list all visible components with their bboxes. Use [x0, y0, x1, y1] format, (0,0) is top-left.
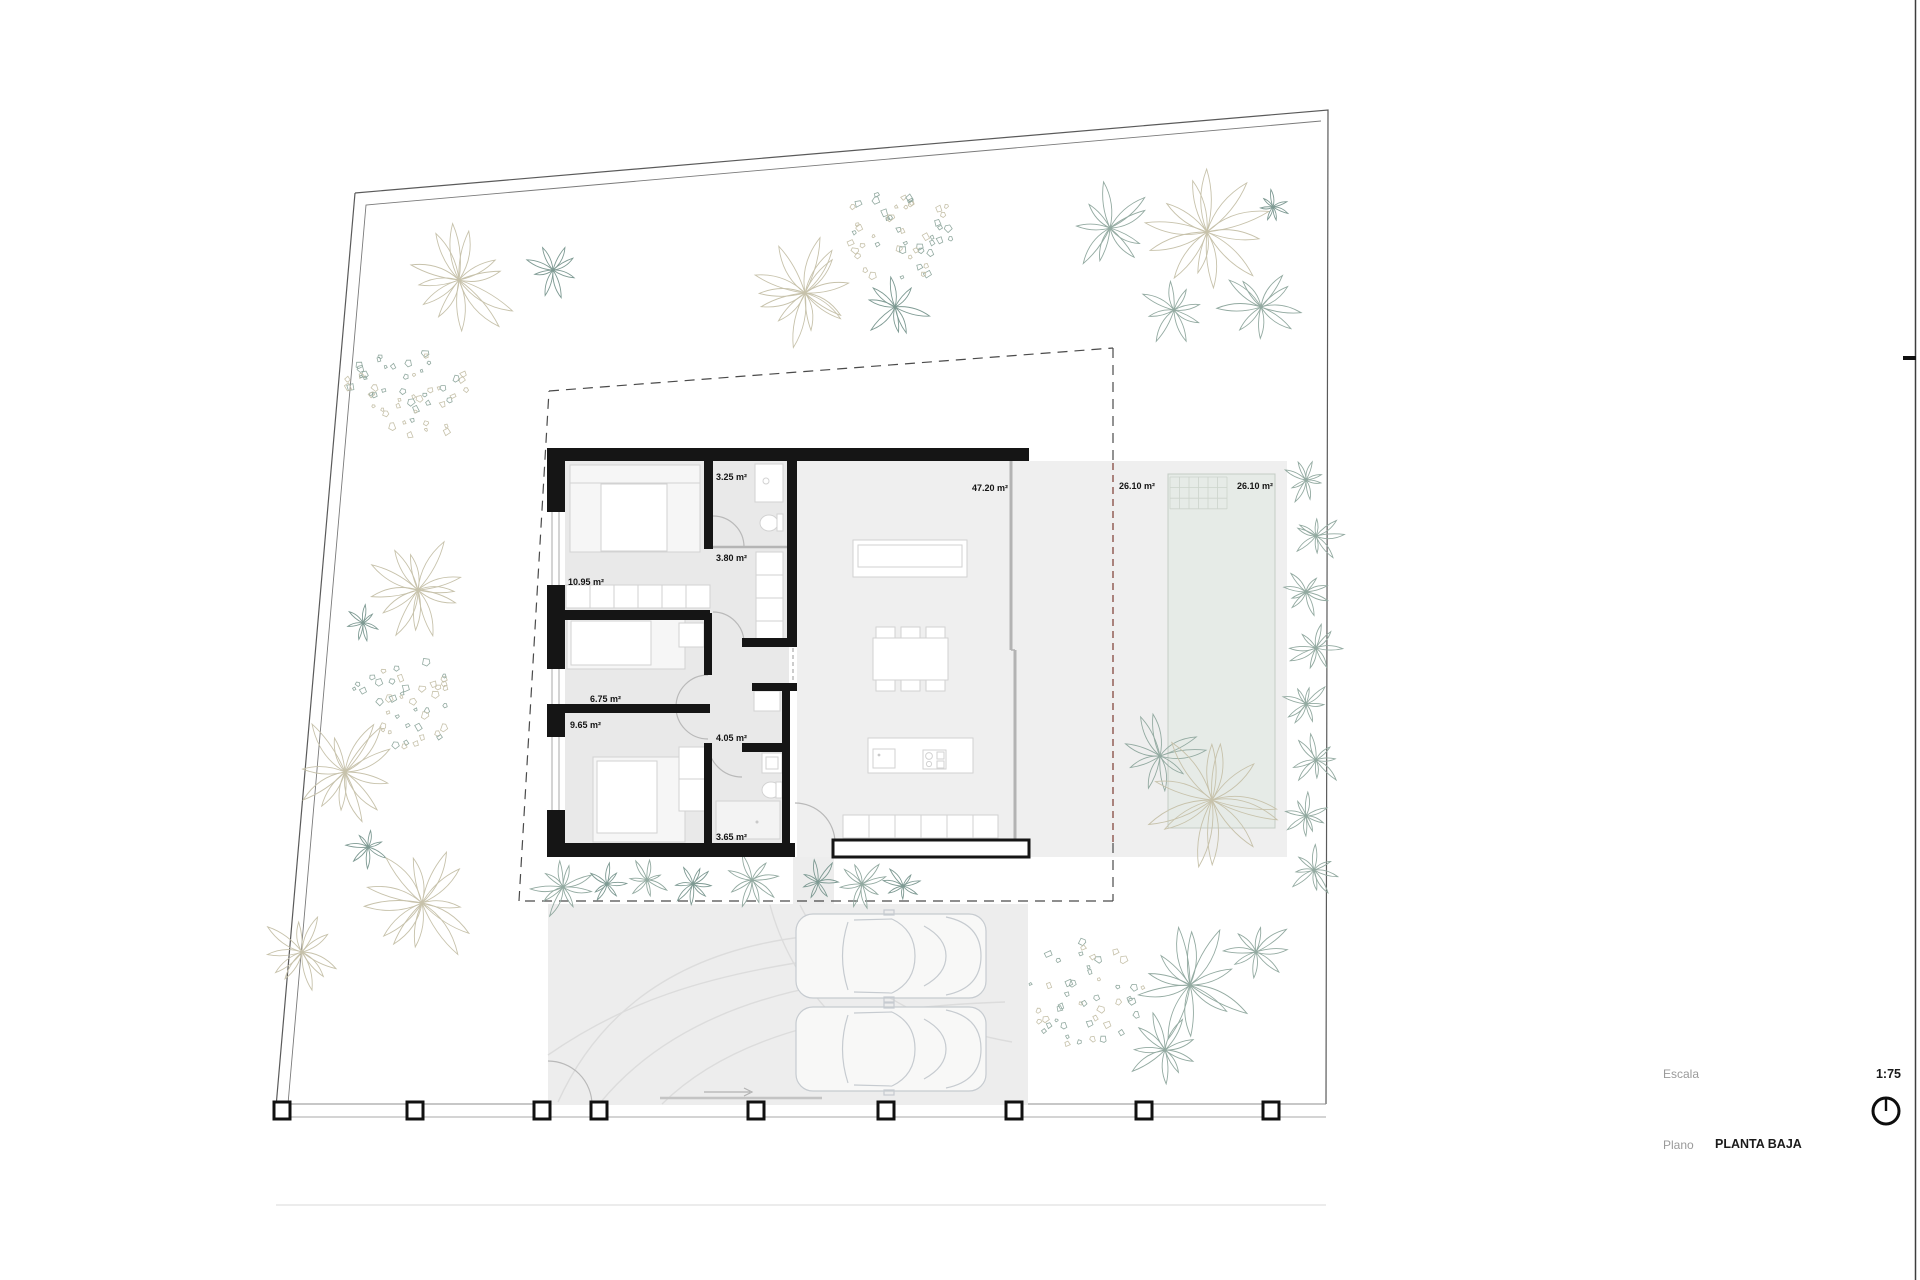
palm-tree [672, 864, 715, 909]
palm-tree [851, 269, 933, 351]
fence-post [878, 1102, 894, 1119]
palm-tree [1066, 176, 1154, 277]
scale-value: 1:75 [1876, 1067, 1901, 1081]
palm-tree [255, 903, 347, 1002]
room-area-label-pool: 26.10 m² [1237, 481, 1273, 491]
fence-post [1136, 1102, 1152, 1119]
sheet-fold-mark [1903, 356, 1916, 360]
palm-tree [1279, 729, 1350, 798]
palm-tree [1128, 148, 1296, 316]
floor-plan-canvas: 10.95 m² 3.25 m² 3.80 m² 6.75 m² 9.65 m²… [0, 0, 1920, 1280]
palm-tree [1222, 922, 1288, 979]
palm-tree [516, 234, 585, 304]
room-area-label-dressing: 6.75 m² [590, 694, 621, 704]
shrub-pebbles [847, 193, 953, 280]
palm-tree [1112, 903, 1273, 1064]
fence-post [591, 1102, 607, 1119]
palm-tree [1113, 1001, 1207, 1095]
palm-tree [342, 826, 391, 872]
fence-post [748, 1102, 764, 1119]
room-area-label-terrace: 26.10 m² [1119, 481, 1155, 491]
room-area-label-bathroom-3: 3.65 m² [716, 832, 747, 842]
palm-tree [1125, 271, 1212, 357]
fence-post [274, 1102, 290, 1119]
palm-tree [1212, 262, 1308, 345]
fence-post [1006, 1102, 1022, 1119]
room-area-label-living: 47.20 m² [972, 483, 1008, 493]
palm-tree [1285, 505, 1354, 573]
shrub-pebbles [353, 659, 448, 750]
room-area-label-bedroom-2: 9.65 m² [570, 720, 601, 730]
palm-tree [408, 220, 514, 338]
palm-tree [1281, 787, 1331, 840]
plan-name-label: Plano [1663, 1138, 1694, 1152]
plan-name-value: PLANTA BAJA [1715, 1137, 1802, 1151]
palm-tree [583, 858, 632, 908]
palm-tree [356, 523, 485, 653]
fence-post [407, 1102, 423, 1119]
window [547, 512, 565, 585]
car [796, 910, 986, 1002]
north-arrow-icon [1873, 1098, 1899, 1124]
palm-tree [1280, 455, 1330, 506]
palm-tree [620, 853, 670, 905]
pool [1168, 474, 1275, 828]
fence-post [534, 1102, 550, 1119]
room-area-label-hall: 3.80 m² [716, 553, 747, 563]
room-area-label-bathroom-2: 4.05 m² [716, 733, 747, 743]
room-area-label-bedroom-1: 10.95 m² [568, 577, 604, 587]
palm-tree [1257, 187, 1293, 225]
title-block: Escala 1:75 Plano PLANTA BAJA [1663, 0, 1916, 1280]
architectural-plan-sheet: 10.95 m² 3.25 m² 3.80 m² 6.75 m² 9.65 m²… [0, 0, 1920, 1280]
car [796, 1003, 986, 1095]
shrub-pebbles [1029, 938, 1145, 1046]
palm-tree [1288, 622, 1345, 671]
room-area-label-bathroom-1: 3.25 m² [716, 472, 747, 482]
palm-tree [364, 851, 473, 956]
scale-label: Escala [1663, 1067, 1699, 1081]
palm-tree [342, 600, 384, 644]
palm-tree [742, 226, 865, 356]
window [547, 669, 565, 704]
shrub-pebbles [368, 351, 468, 438]
fence-post [1263, 1102, 1279, 1119]
palm-tree [1290, 841, 1343, 896]
window [547, 737, 565, 810]
